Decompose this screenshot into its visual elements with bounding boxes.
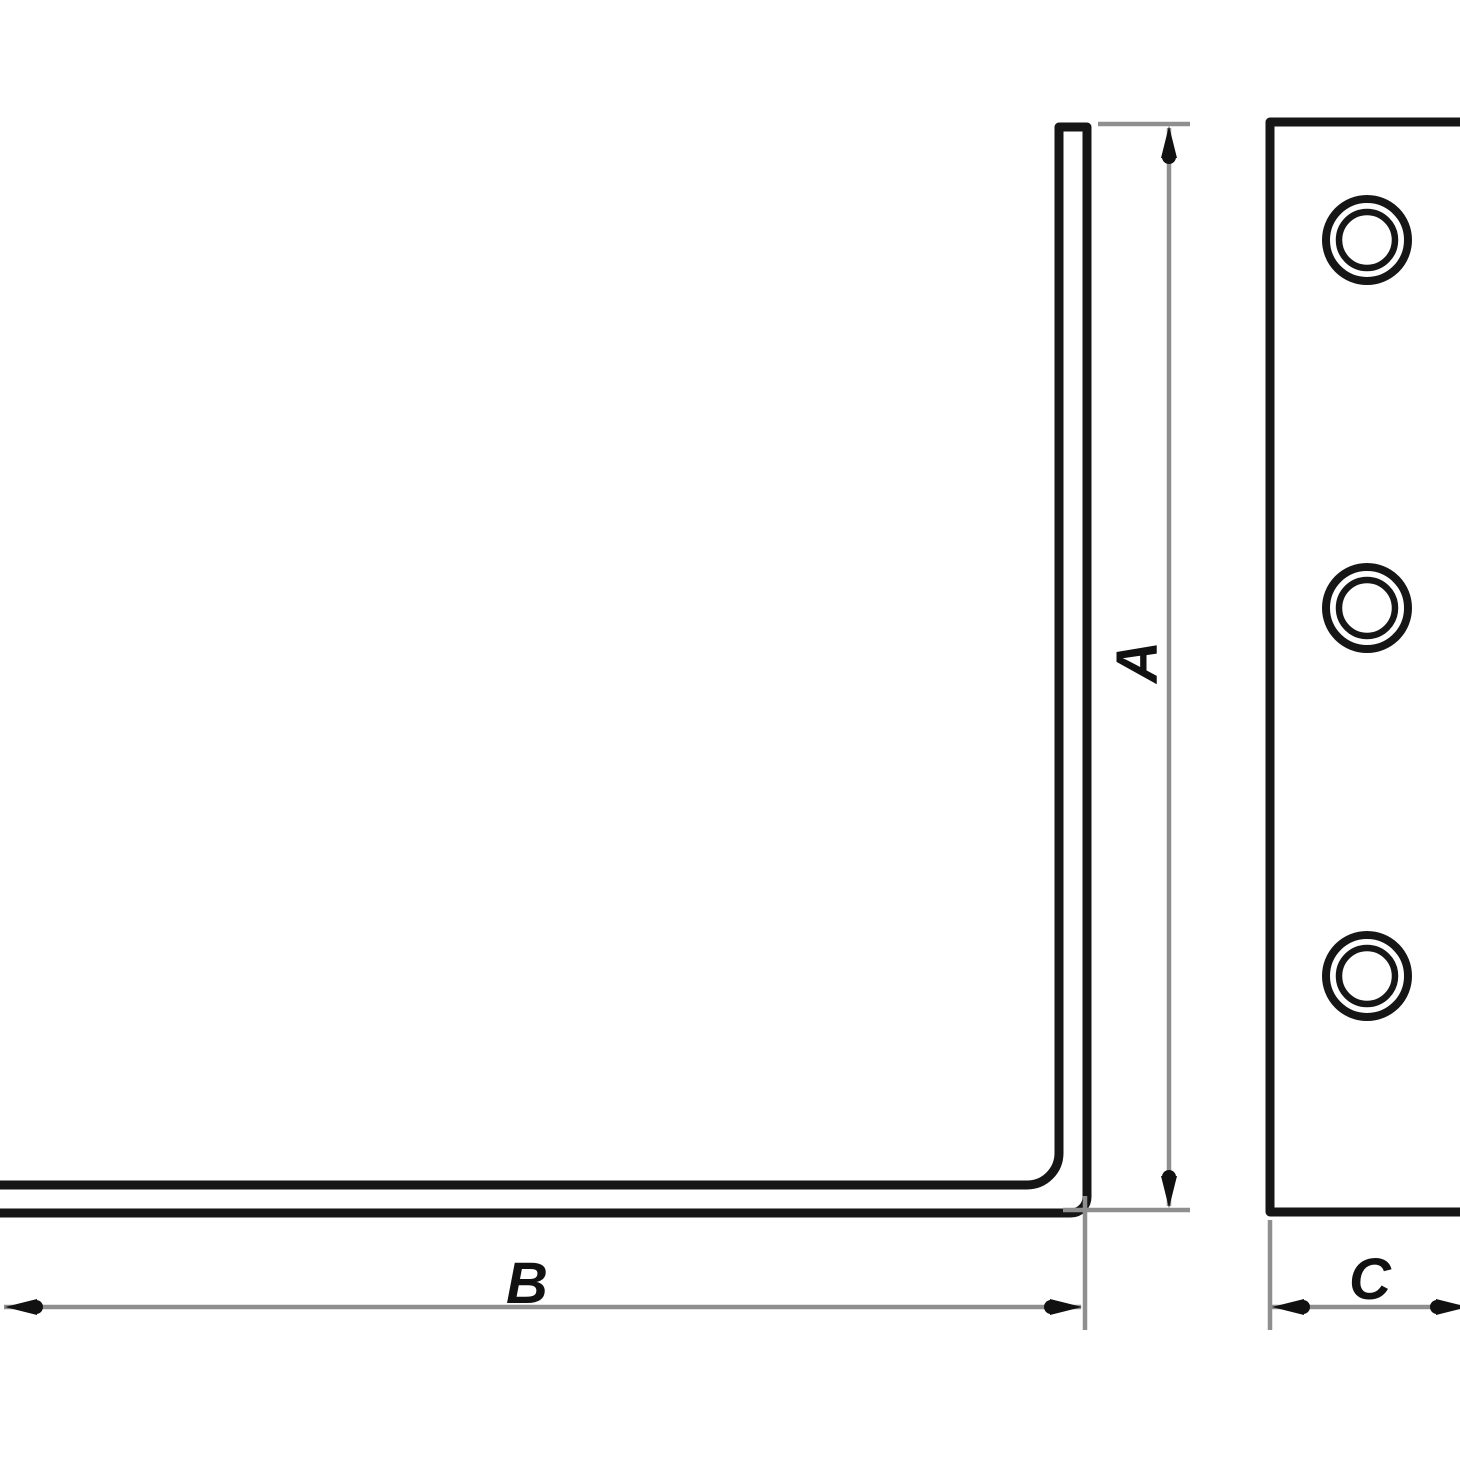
dimension-c: C (1270, 1220, 1460, 1330)
bracket-profile-outline (0, 127, 1087, 1213)
face-view (1270, 122, 1460, 1212)
dimension-a: A (1063, 124, 1190, 1210)
dimension-b-label: B (506, 1251, 548, 1316)
arrowhead-left-icon (5, 1299, 43, 1315)
dimension-a-label: A (1105, 641, 1170, 685)
arrowhead-right-icon (1430, 1299, 1460, 1315)
arrowhead-right-icon (1044, 1299, 1082, 1315)
technical-drawing: A B C (0, 0, 1460, 1460)
dimension-c-label: C (1349, 1247, 1392, 1312)
bracket-plate-outline (1270, 122, 1460, 1212)
arrowhead-up-icon (1161, 126, 1177, 164)
side-view (0, 127, 1087, 1213)
arrowhead-left-icon (1272, 1299, 1310, 1315)
arrowhead-down-icon (1161, 1170, 1177, 1208)
